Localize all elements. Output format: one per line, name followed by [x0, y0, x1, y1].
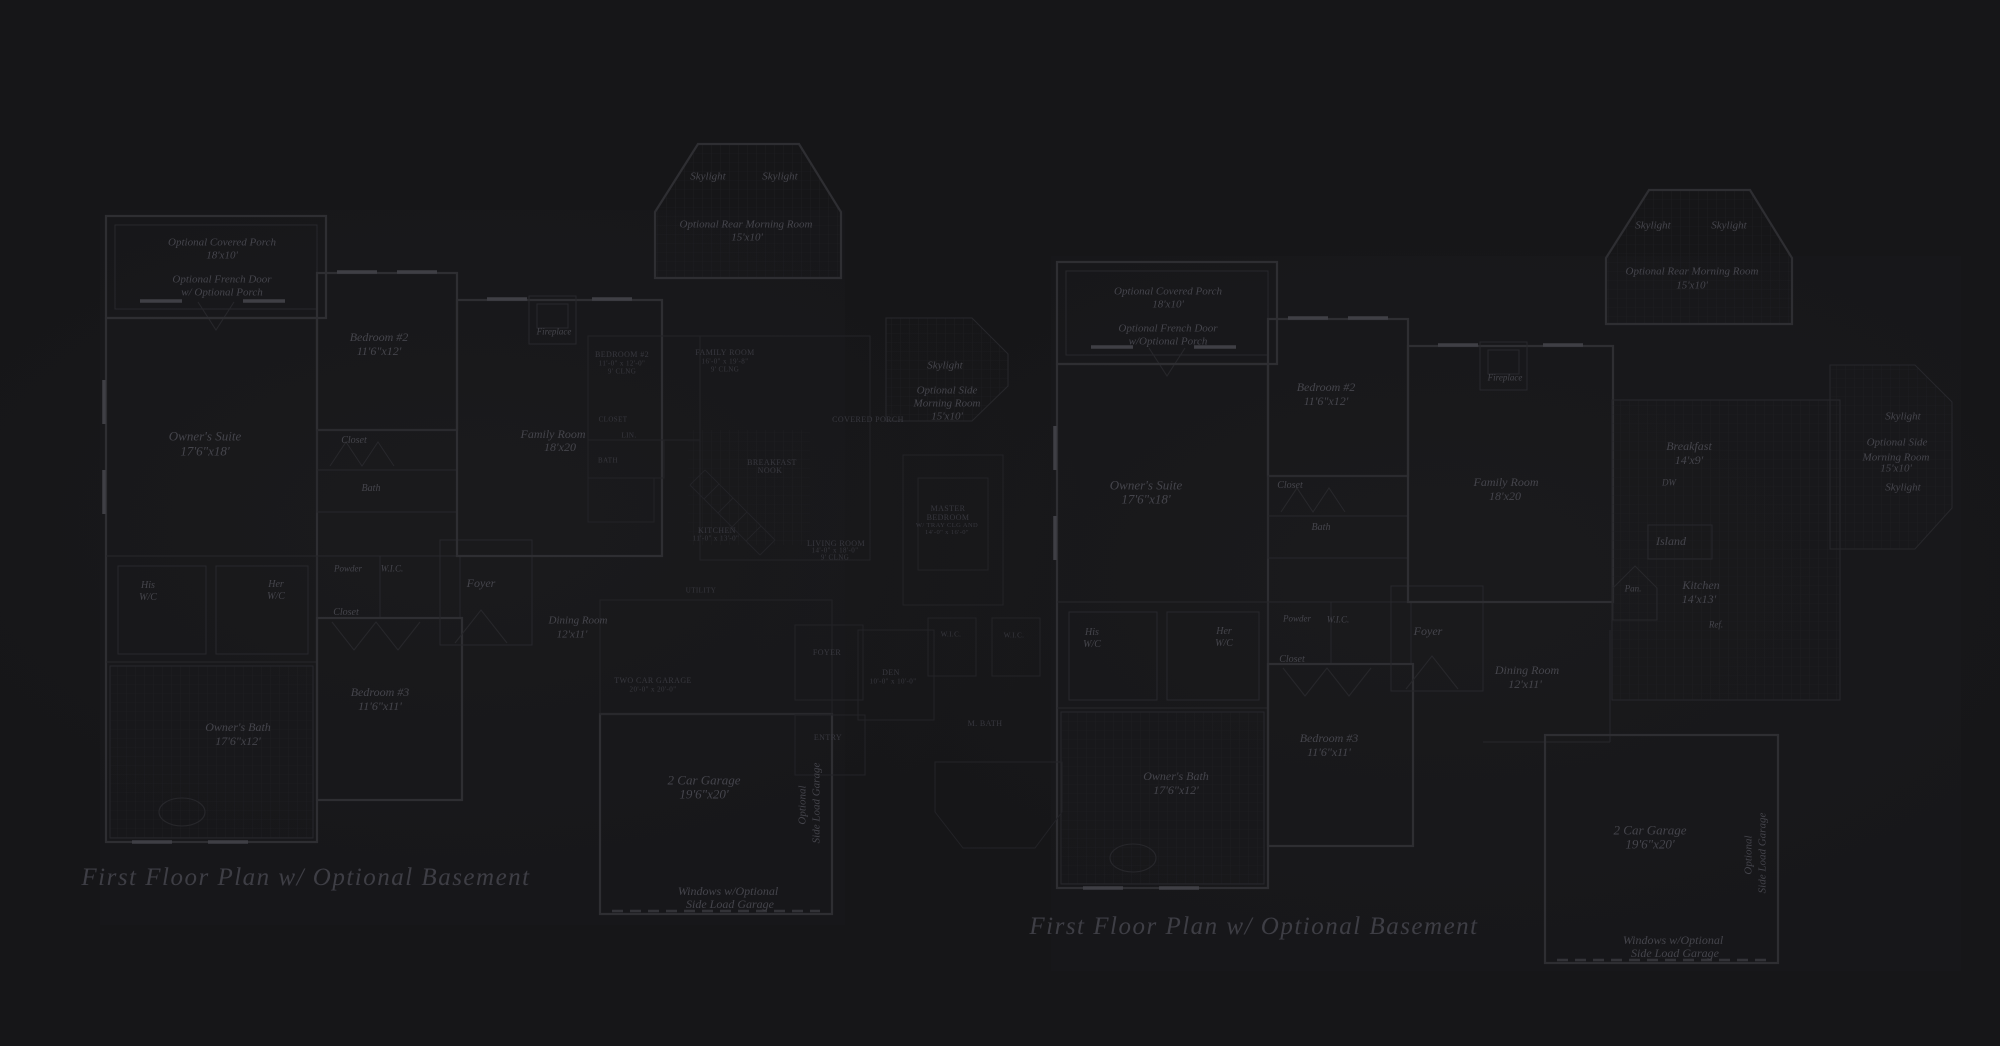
right-room-label: Windows w/Optional	[1623, 934, 1723, 946]
overlay-room-label: 16'-0" x 19'-8"	[702, 359, 749, 366]
overlay-room-label: M. BATH	[968, 720, 1003, 728]
left-room-label: Morning Room	[914, 399, 981, 410]
overlay-room-label: LIN.	[621, 433, 636, 440]
right-room-label: Skylight	[1885, 412, 1920, 423]
right-room-label: His	[1085, 628, 1099, 638]
right-room-label: Closet	[1279, 655, 1305, 665]
overlay-room-label: MASTER	[931, 505, 966, 513]
right-room-label: Breakfast	[1666, 440, 1712, 452]
right-plan-title: First Floor Plan w/ Optional Basement	[1029, 913, 1478, 941]
overlay-room-label: FAMILY ROOM	[695, 349, 754, 357]
right-room-label: Optional Rear Morning Room	[1626, 267, 1759, 278]
right-room-label: Her	[1216, 627, 1232, 637]
left-room-label: Bedroom #3	[351, 686, 410, 698]
left-room-label: Optional Rear Morning Room	[680, 220, 813, 231]
left-room-label: Optional Side	[917, 386, 978, 397]
right-room-label: 17'6"x18'	[1121, 493, 1170, 506]
left-room-label: 11'6"x11'	[358, 700, 402, 712]
left-room-label: Side Load Garage	[812, 763, 823, 844]
left-room-label: Skylight	[927, 361, 962, 372]
overlay-room-label: 20'-0" x 20'-0"	[630, 687, 677, 694]
right-room-label: 14'x13'	[1682, 593, 1716, 605]
overlay-room-label: COVERED PORCH	[832, 416, 904, 424]
left-room-label: 15'x10'	[931, 412, 963, 423]
right-room-label: Fireplace	[1488, 374, 1523, 383]
right-room-label: 11'6"x11'	[1307, 746, 1351, 758]
right-room-label: 18'x20	[1489, 490, 1521, 502]
right-room-label: Skylight	[1711, 221, 1746, 232]
right-room-label: Side Load Garage	[1631, 947, 1719, 959]
left-room-label: His	[141, 581, 155, 591]
right-room-label: Optional Covered Porch	[1114, 287, 1222, 298]
right-room-label: W.I.C.	[1327, 616, 1349, 625]
overlay-room-label: 14'-0" x 16'-0"	[925, 530, 969, 537]
left-room-label: 19'6"x20'	[679, 788, 728, 801]
right-room-label: W/C	[1083, 640, 1101, 650]
right-room-label: Ref.	[1709, 621, 1723, 630]
left-room-label: 15'x10'	[731, 233, 763, 244]
right-room-label: 15'x10'	[1676, 281, 1708, 292]
left-room-label: Her	[268, 580, 284, 590]
right-room-label: Skylight	[1885, 483, 1920, 494]
overlay-room-label: 9' CLNG	[821, 555, 849, 562]
left-plan-title: First Floor Plan w/ Optional Basement	[81, 864, 530, 892]
left-room-label: W.I.C.	[381, 565, 403, 574]
right-room-label: DW	[1662, 479, 1676, 488]
right-room-label: Bath	[1312, 523, 1331, 533]
overlay-room-label: W.I.C.	[1004, 633, 1025, 640]
left-room-label: Owner's Bath	[205, 721, 271, 733]
left-room-label: Optional	[798, 785, 809, 824]
left-room-label: Optional Covered Porch	[168, 238, 276, 249]
left-room-label: W/C	[139, 593, 157, 603]
overlay-room-label: BEDROOM #2	[595, 351, 649, 359]
left-room-label: 18'x20	[544, 441, 576, 453]
right-room-label: Optional Side	[1867, 438, 1928, 449]
left-room-label: 12'x11'	[557, 630, 588, 641]
left-room-label: 2 Car Garage	[668, 774, 741, 787]
left-room-label: Family Room	[521, 428, 586, 440]
left-room-label: w/ Optional Porch	[181, 288, 262, 299]
right-room-label: Optional	[1744, 835, 1755, 874]
overlay-room-label: 10'-0" x 10'-0"	[870, 679, 917, 686]
right-room-label: w/Optional Porch	[1129, 337, 1208, 348]
left-room-label: Windows w/Optional	[678, 885, 778, 897]
overlay-room-label: BATH	[598, 458, 618, 465]
right-room-label: Pan.	[1625, 585, 1642, 594]
right-room-label: Foyer	[1414, 625, 1443, 637]
right-room-label: 17'6"x12'	[1153, 784, 1199, 796]
right-room-label: 15'x10'	[1880, 464, 1912, 475]
left-room-label: 17'6"x12'	[215, 735, 261, 747]
right-room-label: Kitchen	[1682, 579, 1719, 591]
left-room-label: Closet	[341, 436, 367, 446]
blueprint-canvas: Optional Covered Porch18'x10'Optional Fr…	[0, 0, 2000, 1046]
overlay-room-label: W.I.C.	[941, 632, 962, 639]
overlay-room-label: TWO CAR GARAGE	[614, 677, 692, 685]
overlay-room-label: FOYER	[813, 649, 841, 657]
overlay-room-label: 9' CLNG	[711, 367, 739, 374]
right-room-label: Powder	[1283, 615, 1311, 624]
overlay-room-label: ENTRY	[814, 734, 842, 742]
overlay-room-label: UTILITY	[686, 588, 716, 595]
left-room-label: 18'x10'	[206, 251, 238, 262]
left-room-label: Owner's Suite	[169, 430, 241, 443]
left-room-label: Fireplace	[537, 328, 572, 337]
left-room-label: Foyer	[467, 577, 496, 589]
right-room-label: Island	[1656, 535, 1686, 547]
right-room-label: Owner's Bath	[1143, 770, 1209, 782]
right-room-label: 11'6"x12'	[1304, 395, 1349, 407]
right-room-label: 19'6"x20'	[1625, 838, 1674, 851]
right-room-label: 14'x9'	[1675, 454, 1703, 466]
left-room-label: 17'6"x18'	[180, 445, 229, 458]
right-room-label: Side Load Garage	[1758, 813, 1769, 894]
overlay-room-label: 9' CLNG	[608, 369, 636, 376]
right-room-label: Bedroom #2	[1297, 381, 1356, 393]
right-room-label: 2 Car Garage	[1614, 824, 1687, 837]
right-room-label: Dining Room	[1495, 664, 1559, 676]
overlay-room-label: NOOK	[758, 467, 783, 475]
left-room-label: Skylight	[762, 172, 797, 183]
left-room-label: Optional French Door	[172, 275, 271, 286]
left-room-label: Bedroom #2	[350, 331, 409, 343]
left-room-label: Skylight	[690, 172, 725, 183]
left-room-label: Powder	[334, 565, 362, 574]
overlay-room-label: 11'-0" x 12'-0"	[599, 361, 646, 368]
overlay-room-label: CLOSET	[599, 417, 628, 424]
right-room-label: W/C	[1215, 639, 1233, 649]
left-room-label: 11'6"x12'	[357, 345, 402, 357]
right-room-label: 12'x11'	[1508, 678, 1542, 690]
right-room-label: Family Room	[1474, 476, 1539, 488]
left-room-label: W/C	[267, 592, 285, 602]
left-room-label: Dining Room	[549, 616, 608, 627]
right-room-label: Optional French Door	[1118, 324, 1217, 335]
overlay-room-label: DEN	[882, 669, 900, 677]
overlay-room-label: 11'-0" x 13'-0"	[693, 536, 740, 543]
left-room-label: Side Load Garage	[686, 898, 774, 910]
right-room-label: 18'x10'	[1152, 300, 1184, 311]
right-room-label: Closet	[1277, 481, 1303, 491]
right-room-label: Skylight	[1635, 221, 1670, 232]
right-room-label: Owner's Suite	[1110, 479, 1182, 492]
left-room-label: Closet	[333, 608, 359, 618]
right-room-label: Bedroom #3	[1300, 732, 1359, 744]
left-room-label: Bath	[362, 484, 381, 494]
